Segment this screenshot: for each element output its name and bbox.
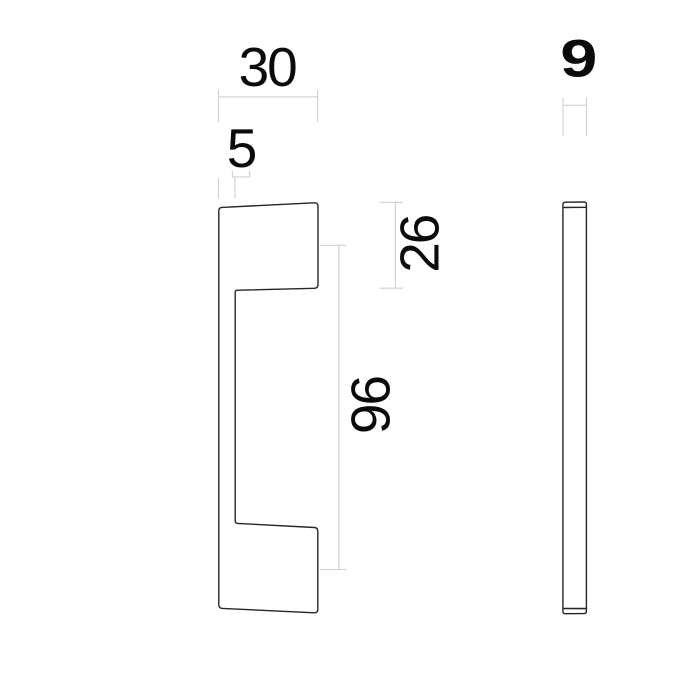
svg-text:30: 30: [239, 36, 297, 98]
svg-text:96: 96: [340, 377, 402, 435]
svg-text:26: 26: [389, 215, 451, 273]
svg-text:5: 5: [227, 117, 258, 179]
svg-text:9: 9: [560, 28, 597, 88]
